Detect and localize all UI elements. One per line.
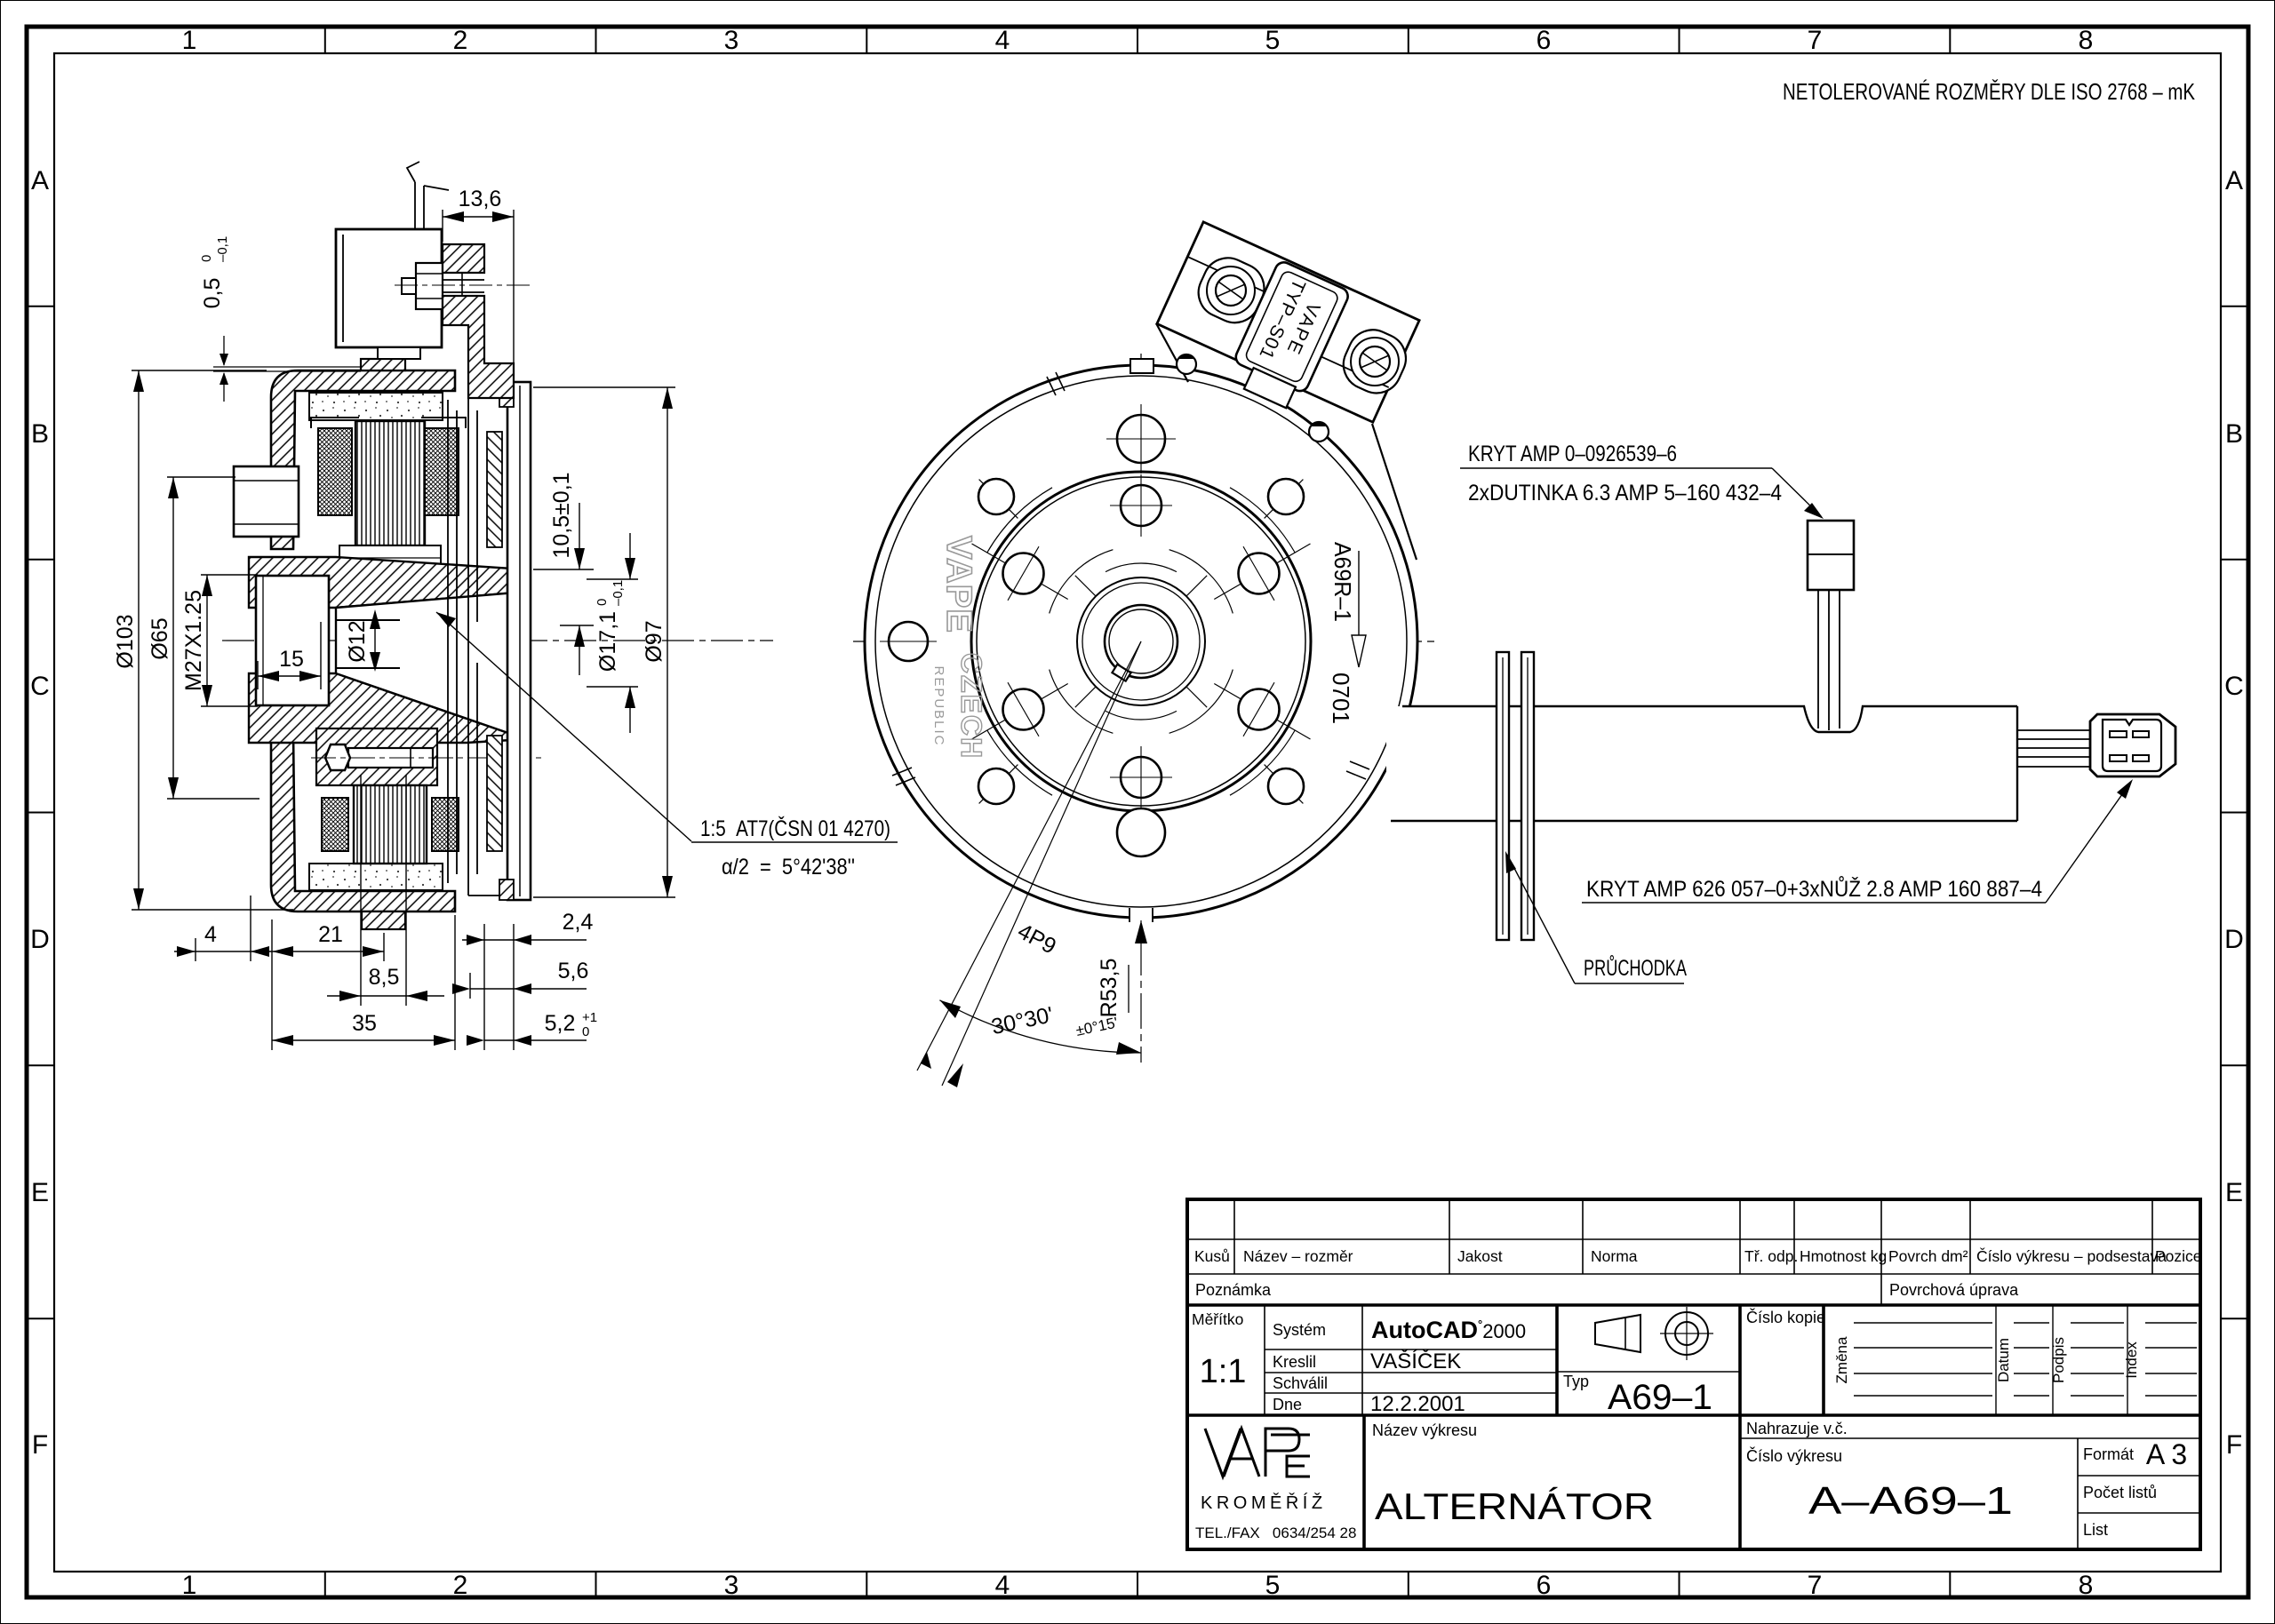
svg-text:0,5: 0,5	[200, 278, 225, 309]
svg-text:21: 21	[318, 922, 343, 947]
svg-text:Index: Index	[2123, 1341, 2140, 1379]
svg-text:Jakost: Jakost	[1457, 1247, 1503, 1265]
svg-text:M27X1.25: M27X1.25	[181, 590, 206, 691]
svg-text:6: 6	[1537, 1571, 1552, 1600]
svg-text:VAPE: VAPE	[939, 536, 978, 633]
svg-text:CZECH: CZECH	[955, 653, 987, 760]
svg-text:4: 4	[995, 26, 1010, 55]
svg-text:6: 6	[1537, 26, 1552, 55]
svg-text:A69R–1: A69R–1	[1329, 542, 1356, 622]
svg-text:List: List	[2083, 1521, 2108, 1539]
svg-text:8: 8	[2079, 1571, 2094, 1600]
svg-text:Tř. odp.: Tř. odp.	[1744, 1247, 1798, 1265]
svg-text:0701: 0701	[1328, 673, 1354, 724]
svg-text:+1: +1	[582, 1010, 597, 1025]
svg-text:KRYT AMP 0–0926539–6: KRYT AMP 0–0926539–6	[1468, 442, 1677, 466]
svg-text:5: 5	[1265, 26, 1281, 55]
svg-text:Počet listů: Počet listů	[2083, 1484, 2157, 1501]
svg-text:E: E	[2225, 1178, 2243, 1207]
svg-text:3: 3	[724, 1571, 739, 1600]
svg-text:7: 7	[1808, 1571, 1823, 1600]
svg-text:13,6: 13,6	[459, 187, 502, 211]
svg-text:Pozice: Pozice	[2155, 1247, 2202, 1265]
svg-text:Ø12: Ø12	[345, 620, 370, 662]
svg-text:ALTERNÁTOR: ALTERNÁTOR	[1375, 1485, 1654, 1527]
svg-text:A–A69–1: A–A69–1	[1808, 1479, 2013, 1523]
svg-text:Ø103: Ø103	[113, 614, 138, 668]
svg-text:Dne: Dne	[1273, 1396, 1302, 1413]
svg-text:C: C	[30, 672, 50, 701]
svg-text:C: C	[2224, 672, 2244, 701]
svg-text:0: 0	[582, 1024, 589, 1039]
svg-text:TEL./FAX 0634/254 28: TEL./FAX 0634/254 28	[1195, 1524, 1356, 1541]
svg-text:D: D	[2224, 925, 2244, 954]
svg-text:4: 4	[995, 1571, 1010, 1600]
svg-text:10,5±0,1: 10,5±0,1	[549, 472, 574, 558]
svg-text:R53,5: R53,5	[1097, 959, 1122, 1018]
svg-text:Název výkresu: Název výkresu	[1372, 1421, 1477, 1439]
svg-text:2: 2	[453, 26, 468, 55]
svg-text:3: 3	[724, 26, 739, 55]
svg-text:E: E	[31, 1178, 49, 1207]
svg-text:Kreslil: Kreslil	[1273, 1353, 1316, 1371]
svg-text:Nahrazuje v.č.: Nahrazuje v.č.	[1746, 1420, 1848, 1437]
svg-text:A 3: A 3	[2146, 1438, 2187, 1470]
svg-text:Změna: Změna	[1833, 1336, 1850, 1383]
svg-text:KRYT AMP 626 057–0+3xNŮŽ 2.8 A: KRYT AMP 626 057–0+3xNŮŽ 2.8 AMP 160 887…	[1586, 874, 2042, 902]
svg-text:2xDUTINKA 6.3 AMP 5–160 432–4: 2xDUTINKA 6.3 AMP 5–160 432–4	[1468, 481, 1782, 506]
svg-text:Povrchová úprava: Povrchová úprava	[1889, 1281, 2019, 1299]
svg-text:Ø97: Ø97	[642, 620, 667, 662]
svg-text:Norma: Norma	[1591, 1247, 1638, 1265]
svg-text:2,4: 2,4	[563, 910, 594, 935]
svg-text:15: 15	[279, 647, 304, 672]
svg-text:D: D	[30, 925, 50, 954]
svg-text:VAŠÍČEK: VAŠÍČEK	[1370, 1349, 1461, 1373]
svg-text:Měřítko: Měřítko	[1192, 1310, 1243, 1328]
svg-text:4: 4	[204, 922, 217, 947]
svg-text:5: 5	[1265, 1571, 1281, 1600]
svg-text:1: 1	[182, 26, 197, 55]
svg-text:Ø17,1: Ø17,1	[595, 611, 620, 672]
svg-text:8: 8	[2079, 26, 2094, 55]
svg-text:Schválil: Schválil	[1273, 1374, 1328, 1392]
svg-text:Ø65: Ø65	[148, 617, 172, 659]
svg-text:A: A	[2225, 166, 2243, 195]
svg-text:Typ: Typ	[1563, 1373, 1589, 1390]
svg-text:Povrch dm²: Povrch dm²	[1888, 1247, 1968, 1265]
svg-text:35: 35	[352, 1011, 377, 1036]
svg-text:1: 1	[182, 1571, 197, 1600]
svg-text:8,5: 8,5	[369, 965, 400, 990]
svg-text:Poznámka: Poznámka	[1195, 1281, 1272, 1299]
svg-text:Číslo výkresu – podsestava: Číslo výkresu – podsestava	[1976, 1246, 2167, 1265]
svg-text:0: 0	[595, 599, 610, 606]
svg-text:0: 0	[199, 255, 214, 262]
svg-text:A69–1: A69–1	[1608, 1378, 1712, 1417]
svg-text:PRŮCHODKA: PRŮCHODKA	[1584, 953, 1687, 981]
svg-text:–0,1: –0,1	[215, 236, 230, 262]
svg-text:12.2.2001: 12.2.2001	[1370, 1392, 1465, 1416]
svg-text:Formát: Formát	[2083, 1445, 2134, 1463]
svg-text:7: 7	[1808, 26, 1823, 55]
svg-text:Systém: Systém	[1273, 1321, 1326, 1339]
svg-text:Název – rozměr: Název – rozměr	[1243, 1247, 1353, 1265]
svg-text:1:5 AT7(ČSN 01 4270): 1:5 AT7(ČSN 01 4270)	[700, 816, 890, 841]
svg-text:F: F	[32, 1430, 48, 1460]
svg-text:Hmotnost kg: Hmotnost kg	[1800, 1247, 1887, 1265]
svg-text:–0,1: –0,1	[611, 580, 626, 606]
svg-text:1:1: 1:1	[1200, 1353, 1247, 1390]
svg-text:Číslo výkresu: Číslo výkresu	[1746, 1446, 1842, 1465]
svg-text:Kusů: Kusů	[1194, 1247, 1230, 1265]
svg-text:NETOLEROVANÉ ROZMĚRY DLE ISO 2: NETOLEROVANÉ ROZMĚRY DLE ISO 2768 – mK	[1783, 78, 2196, 105]
svg-text:5,2: 5,2	[545, 1011, 576, 1036]
svg-text:B: B	[31, 419, 49, 449]
svg-text:Číslo kopie: Číslo kopie	[1746, 1308, 1825, 1326]
svg-text:2: 2	[453, 1571, 468, 1600]
svg-text:A: A	[31, 166, 49, 195]
svg-text:B: B	[2225, 419, 2243, 449]
svg-text:AutoCAD°2000: AutoCAD°2000	[1371, 1317, 1526, 1343]
svg-text:KROMĚŘÍŽ: KROMĚŘÍŽ	[1201, 1493, 1327, 1513]
svg-text:Podpis: Podpis	[2050, 1337, 2067, 1383]
svg-text:F: F	[2226, 1430, 2242, 1460]
svg-text:REPUBLIC: REPUBLIC	[931, 665, 946, 746]
svg-text:α/2 = 5°42'38'': α/2 = 5°42'38''	[722, 855, 855, 880]
svg-text:5,6: 5,6	[558, 959, 589, 983]
svg-text:Datum: Datum	[1995, 1338, 2012, 1382]
